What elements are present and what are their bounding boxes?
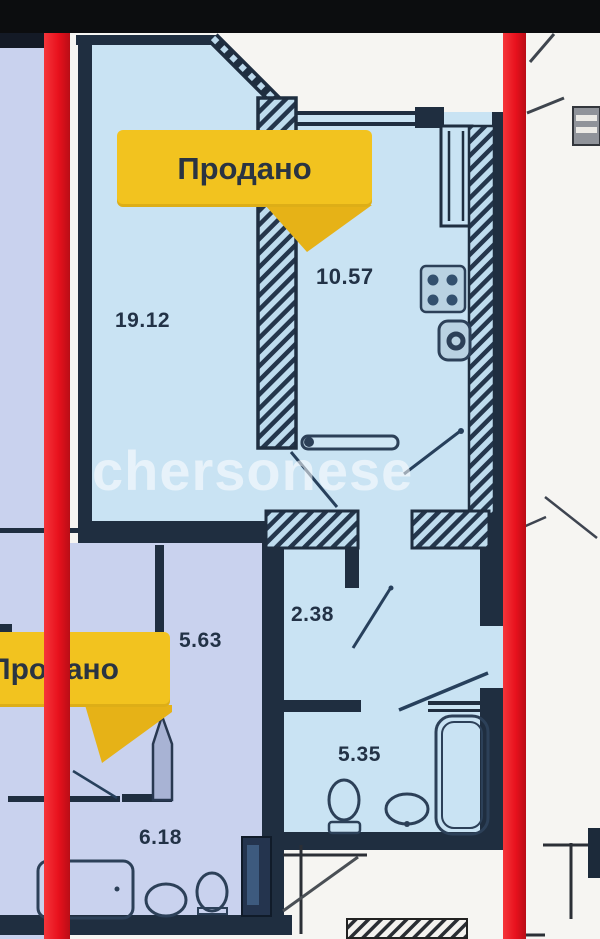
stove-icon [421, 266, 465, 312]
floor-plan-page: { "plan": { "watermark": "chersonese", "… [0, 0, 600, 939]
sold-badge: Продано [117, 130, 372, 207]
watermark-text: chersonese [92, 438, 522, 503]
sold-badge-neighbor: Продано [0, 632, 170, 707]
washing-machine-icon [242, 837, 271, 916]
highlight-stripe-left [44, 28, 70, 939]
area-label-neighbor-room-top: 5.63 [179, 629, 222, 653]
highlight-stripe-right [503, 28, 526, 939]
kitchen-sink-icon [439, 321, 470, 360]
area-label-neighbor-room-bottom: 6.18 [139, 826, 182, 850]
kitchen-window [441, 126, 472, 226]
top-letterbox-bar [0, 0, 600, 33]
area-label-bathroom: 5.35 [338, 743, 381, 767]
area-label-living-room: 19.12 [115, 309, 170, 333]
area-label-kitchen: 10.57 [316, 264, 374, 290]
area-label-hallway: 2.38 [291, 603, 334, 627]
